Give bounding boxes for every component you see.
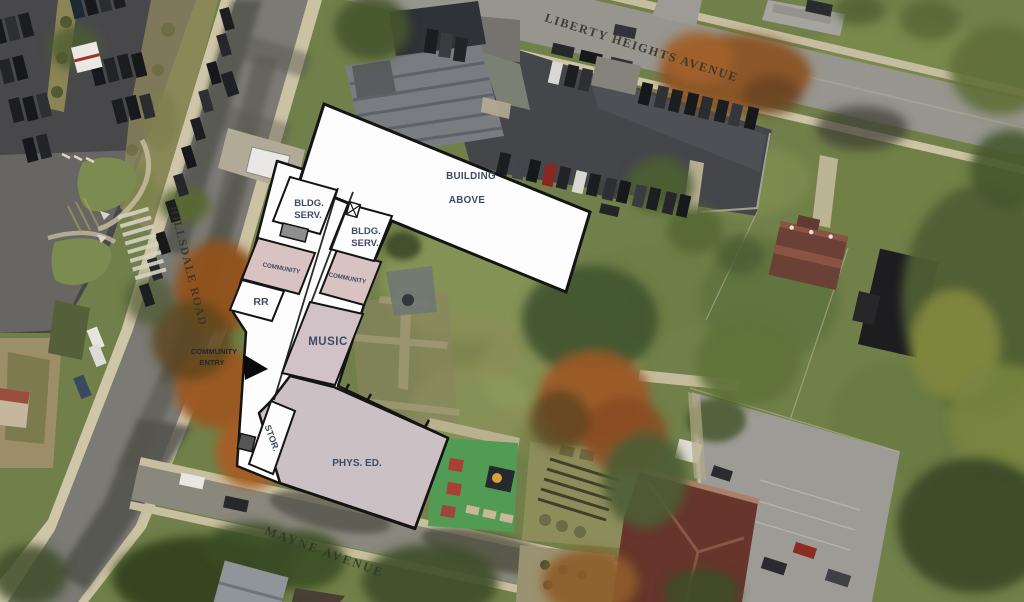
- svg-text:BLDG.: BLDG.: [294, 198, 324, 209]
- svg-text:COMMUNITY: COMMUNITY: [191, 347, 237, 356]
- svg-text:ABOVE: ABOVE: [449, 195, 486, 206]
- svg-text:PHYS. ED.: PHYS. ED.: [332, 458, 382, 469]
- svg-text:SERV.: SERV.: [294, 210, 321, 221]
- svg-text:MUSIC: MUSIC: [308, 336, 348, 348]
- svg-text:ENTRY: ENTRY: [199, 358, 224, 367]
- svg-text:BUILDING: BUILDING: [446, 171, 496, 182]
- svg-text:BLDG.: BLDG.: [351, 226, 381, 237]
- svg-text:RR: RR: [253, 296, 269, 308]
- svg-text:SERV.: SERV.: [351, 238, 378, 249]
